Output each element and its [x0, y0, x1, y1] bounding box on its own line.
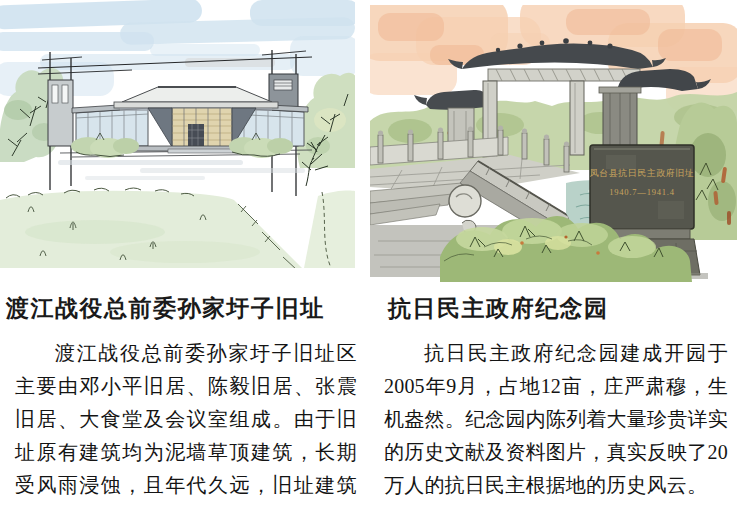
entry-door: [188, 124, 204, 148]
right-illustration: 凤台县抗日民主政府旧址 1940.7—1941.4: [370, 5, 737, 282]
memorial-garden-watercolor: 凤台县抗日民主政府旧址 1940.7—1941.4: [370, 5, 737, 282]
right-body-text: 抗日民主政府纪念园建成开园于2005年9月，占地12亩，庄严肃穆，生机盎然。纪念…: [384, 337, 728, 502]
monument-inscription-line1: 凤台县抗日民主政府旧址: [590, 168, 695, 178]
scroll-medallion: [449, 185, 481, 217]
left-illustration: [0, 0, 355, 268]
left-title: 渡江战役总前委孙家圩子旧址: [6, 293, 325, 324]
document-page: 凤台县抗日民主政府旧址 1940.7—1941.4: [0, 0, 737, 506]
right-title: 抗日民主政府纪念园: [388, 293, 609, 324]
building-sketch: [0, 0, 355, 268]
arch-pillar-right: [570, 81, 584, 155]
left-body-text: 渡江战役总前委孙家圩子旧址区主要由邓小平旧居、陈毅旧居、张震旧居、大食堂及会议室…: [15, 337, 357, 506]
lawn: [0, 188, 355, 268]
right-tree: [297, 73, 355, 168]
ground-wash: [58, 160, 305, 180]
monument-inscription-line2: 1940.7—1941.4: [609, 187, 675, 197]
central-roof: [122, 87, 272, 102]
